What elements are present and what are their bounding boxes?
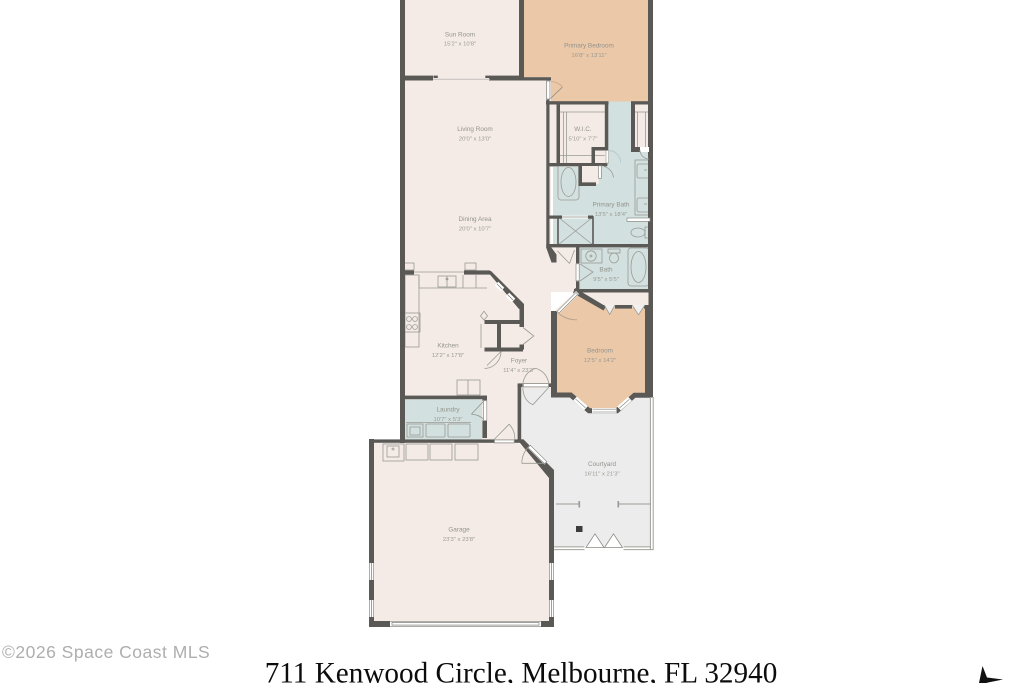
svg-text:12'5" x 14'2": 12'5" x 14'2" [584, 358, 616, 364]
svg-text:Dining Area: Dining Area [458, 216, 491, 223]
svg-text:Primary Bath: Primary Bath [593, 202, 630, 209]
svg-text:Living Room: Living Room [457, 126, 493, 133]
svg-text:Garage: Garage [448, 527, 470, 534]
svg-text:15'2" x 10'8": 15'2" x 10'8" [444, 41, 476, 47]
svg-text:711 Kenwood Circle, Melbourne,: 711 Kenwood Circle, Melbourne, FL 32940 [265, 658, 778, 683]
svg-text:20'0" x 13'0": 20'0" x 13'0" [459, 137, 491, 143]
svg-text:Laundry: Laundry [436, 407, 460, 414]
svg-text:Bedroom: Bedroom [587, 348, 613, 355]
svg-text:11'4" x 23'3": 11'4" x 23'3" [503, 368, 535, 374]
svg-text:Foyer: Foyer [511, 358, 528, 365]
svg-text:Kitchen: Kitchen [437, 343, 459, 350]
svg-text:13'5" x 18'4": 13'5" x 18'4" [595, 212, 627, 218]
svg-text:W.I.C.: W.I.C. [574, 126, 592, 133]
svg-text:10'7" x 5'3": 10'7" x 5'3" [433, 417, 462, 423]
svg-text:Courtyard: Courtyard [588, 461, 617, 468]
svg-text:Bath: Bath [599, 267, 613, 274]
svg-text:9'5" x 5'5": 9'5" x 5'5" [593, 277, 619, 283]
svg-text:5'10" x 7'7": 5'10" x 7'7" [568, 137, 597, 143]
svg-text:Primary Bedroom: Primary Bedroom [564, 43, 614, 50]
svg-text:©2026 Space Coast MLS: ©2026 Space Coast MLS [2, 642, 210, 662]
svg-text:23'3" x 23'8": 23'3" x 23'8" [443, 537, 475, 543]
svg-text:12'2" x 17'8": 12'2" x 17'8" [432, 353, 464, 359]
svg-text:20'0" x 10'7": 20'0" x 10'7" [459, 227, 491, 233]
svg-text:Sun Room: Sun Room [445, 31, 475, 38]
svg-text:16'11" x 21'3": 16'11" x 21'3" [584, 472, 619, 478]
svg-text:16'8" x 13'11": 16'8" x 13'11" [571, 53, 606, 59]
